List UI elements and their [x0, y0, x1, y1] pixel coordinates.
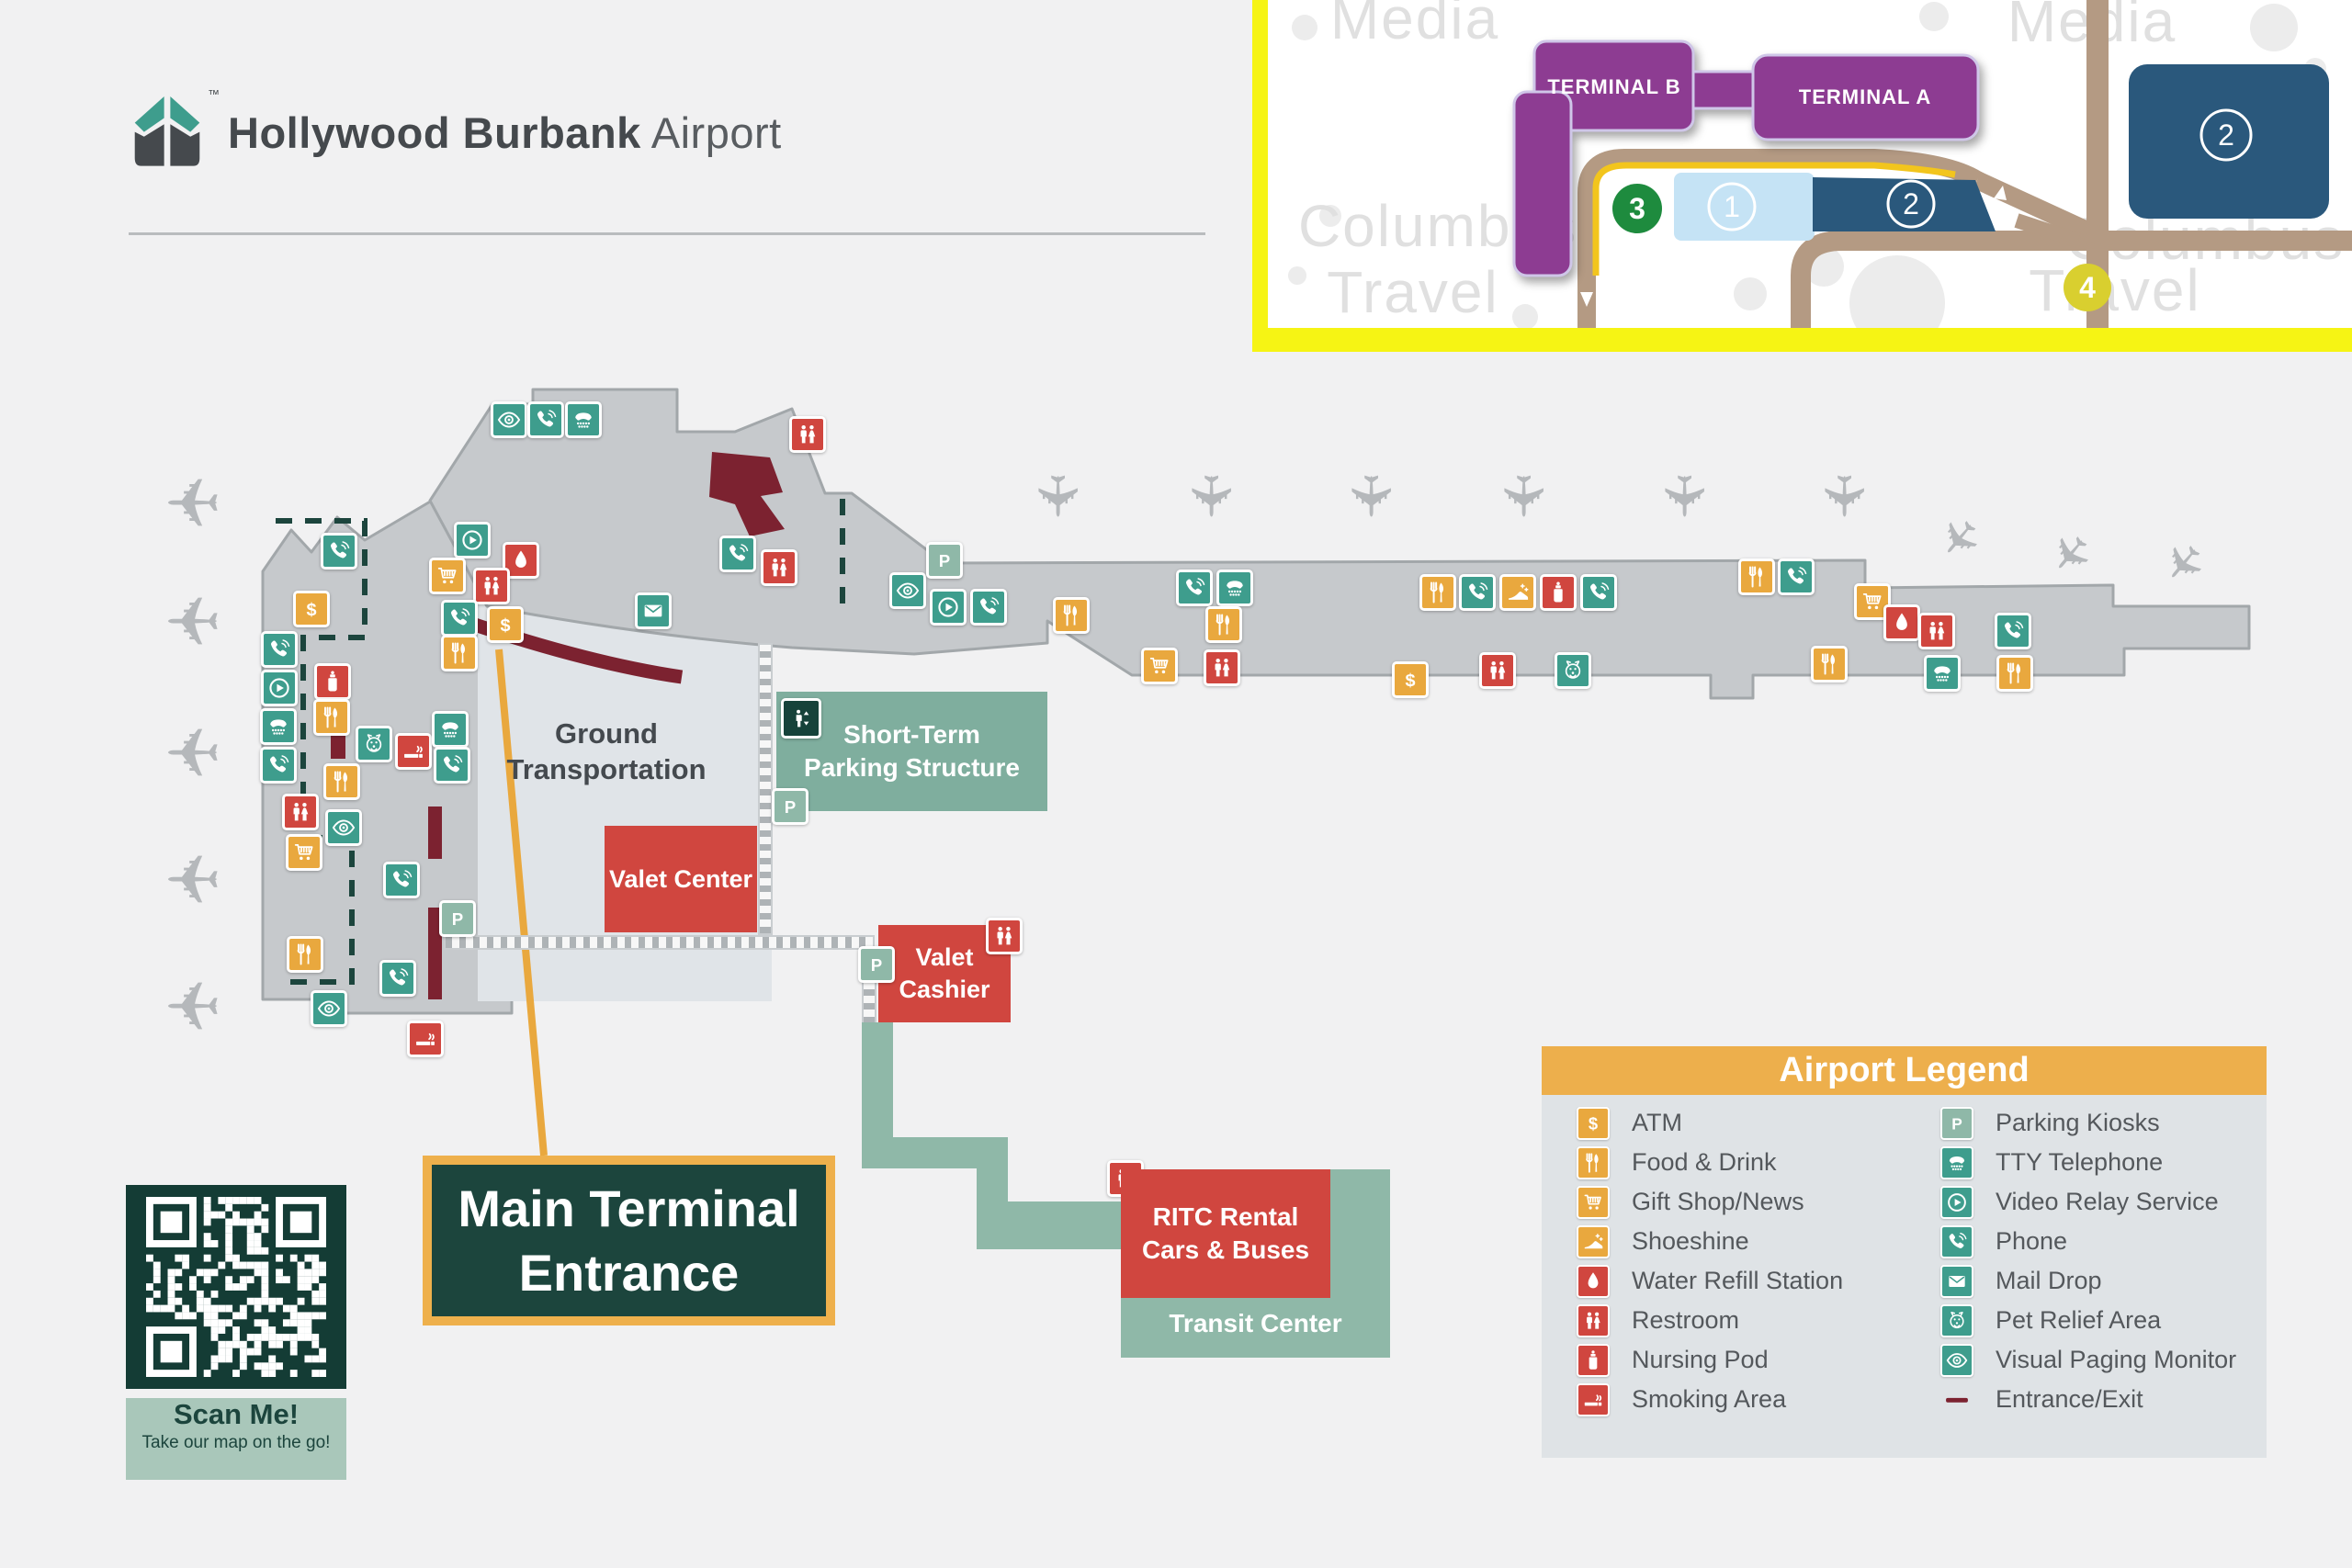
airplane-icon: ✈: [1341, 472, 1398, 520]
svg-text:P: P: [785, 797, 796, 817]
cart-icon: [286, 834, 322, 871]
entrance-exit-mark: [428, 807, 442, 859]
mail-icon: [1940, 1265, 1973, 1298]
legend-label: Shoeshine: [1632, 1227, 1749, 1256]
airplane-icon: ✈: [1494, 472, 1551, 520]
svg-text:P: P: [871, 955, 882, 975]
legend-row: TTY Telephone: [1940, 1143, 2236, 1182]
food-icon: [1419, 574, 1456, 611]
phone-icon: [1778, 558, 1815, 595]
legend-label: Nursing Pod: [1632, 1346, 1769, 1374]
legend-label: Phone: [1996, 1227, 2067, 1256]
video-icon: [1940, 1186, 1973, 1219]
watermark-text: Travel: [1327, 259, 1498, 325]
terminal-b-label: TERMINAL B: [1547, 75, 1680, 98]
legend-row: Mail Drop: [1940, 1261, 2236, 1301]
svg-text:P: P: [452, 909, 463, 929]
restroom-icon: [1918, 613, 1955, 649]
legend-label: Restroom: [1632, 1306, 1739, 1335]
food-icon: [1205, 606, 1242, 643]
legend-row: Phone: [1940, 1222, 2236, 1261]
valet-center-block: Valet Center: [605, 826, 757, 932]
phone-icon: [1940, 1225, 1973, 1258]
shoe-icon: [1499, 574, 1536, 611]
restroom-icon: [789, 416, 826, 453]
restroom-icon: [1577, 1304, 1610, 1337]
legend-left-column: $ATMFood & DrinkGift Shop/NewsShoeshineW…: [1577, 1103, 1843, 1419]
main-terminal-entrance-sign: Main Terminal Entrance: [423, 1156, 835, 1325]
watermark-text: Travel: [2029, 257, 2200, 323]
atm-icon: $: [1577, 1107, 1610, 1140]
smoking-icon: [1577, 1383, 1610, 1416]
food-icon: [1811, 646, 1848, 682]
restroom-icon: [1204, 649, 1240, 686]
stop-4-marker: 4: [2079, 271, 2096, 304]
pet-icon: [356, 726, 392, 762]
tty-icon: [565, 401, 602, 438]
legend-label: Visual Paging Monitor: [1996, 1346, 2236, 1374]
airplane-icon: ✈: [164, 470, 221, 538]
watermark-text: Media: [1330, 0, 1499, 51]
trademark: ™: [208, 87, 220, 101]
video-icon: [454, 522, 491, 558]
parking-icon: P: [1940, 1107, 1973, 1140]
tty-icon: [1940, 1146, 1973, 1179]
atm-icon: $: [487, 606, 524, 643]
legend-label: Smoking Area: [1632, 1385, 1786, 1414]
elevator-icon: [781, 698, 821, 739]
eye-icon: [311, 990, 347, 1027]
svg-text:$: $: [1589, 1113, 1598, 1133]
cart-icon: [429, 558, 466, 594]
phone-icon: [1995, 613, 2031, 649]
phone-icon: [383, 862, 420, 898]
legend-row: $ATM: [1577, 1103, 1843, 1143]
inset-overview-map: " MediaMediaColumbusColumbusTravelTravel: [1252, 0, 2352, 352]
smoking-icon: [407, 1021, 444, 1057]
legend-row: Smoking Area: [1577, 1380, 1843, 1419]
phone-icon: [321, 533, 357, 570]
airplane-icon: ✈: [1028, 472, 1085, 520]
qr-title: Scan Me!: [126, 1398, 346, 1431]
legend-label: ATM: [1632, 1109, 1682, 1137]
legend-label: Parking Kiosks: [1996, 1109, 2160, 1137]
airplane-icon: ✈: [164, 589, 221, 657]
video-icon: [930, 589, 967, 626]
mail-icon: [635, 592, 672, 629]
ground-transportation-label: Ground Transportation: [469, 716, 744, 788]
qr-caption: Scan Me! Take our map on the go!: [126, 1398, 346, 1480]
qr-subtitle: Take our map on the go!: [126, 1433, 346, 1453]
airplane-icon: ✈: [164, 720, 221, 788]
legend-row: Water Refill Station: [1577, 1261, 1843, 1301]
water-icon: [1883, 604, 1920, 641]
airport-legend: Airport Legend $ATMFood & DrinkGift Shop…: [1542, 1046, 2267, 1458]
phone-icon: [441, 600, 478, 637]
stop-3-marker: 3: [1629, 192, 1645, 225]
legend-header: Airport Legend: [1542, 1046, 2267, 1095]
atm-icon: $: [293, 591, 330, 627]
airport-map-page: ™ Hollywood Burbank Airport Ground Trans…: [0, 0, 2352, 1568]
entrance-icon: [1940, 1383, 1973, 1416]
svg-text:$: $: [500, 615, 510, 636]
eye-icon: [325, 809, 362, 846]
qr-code: [126, 1185, 346, 1389]
video-icon: [261, 670, 298, 706]
legend-row: Pet Relief Area: [1940, 1301, 2236, 1340]
food-icon: [287, 936, 323, 973]
legend-row: Food & Drink: [1577, 1143, 1843, 1182]
legend-row: Gift Shop/News: [1577, 1182, 1843, 1222]
restroom-icon: [761, 549, 797, 586]
food-icon: [313, 699, 350, 736]
parking-icon: P: [858, 946, 895, 983]
phone-icon: [261, 631, 298, 668]
phone-icon: [719, 536, 756, 572]
legend-row: Nursing Pod: [1577, 1340, 1843, 1380]
airplane-icon: ✈: [164, 847, 221, 915]
terminal-a-label: TERMINAL A: [1799, 85, 1931, 108]
food-icon: [1577, 1146, 1610, 1179]
nursing-icon: [1540, 574, 1577, 611]
tty-icon: [1216, 570, 1253, 606]
legend-label: Entrance/Exit: [1996, 1385, 2143, 1414]
restroom-icon: [1479, 652, 1516, 689]
airplane-icon: ✈: [1815, 472, 1871, 520]
lot-2-marker: 2: [1903, 187, 1919, 220]
svg-text:$: $: [306, 600, 316, 620]
brand-name: Hollywood Burbank Airport: [228, 107, 782, 158]
legend-row: Restroom: [1577, 1301, 1843, 1340]
shoe-icon: [1577, 1225, 1610, 1258]
restroom-icon: [473, 568, 510, 604]
phone-icon: [1176, 570, 1213, 606]
restroom-icon: [986, 918, 1023, 954]
tty-icon: [260, 708, 297, 745]
phone-icon: [260, 747, 297, 784]
legend-right-column: PParking KiosksTTY TelephoneVideo Relay …: [1940, 1103, 2236, 1419]
qr-panel: Scan Me! Take our map on the go!: [126, 1185, 346, 1480]
transit-center-label: Transit Center: [1139, 1309, 1372, 1338]
svg-text:P: P: [1951, 1114, 1962, 1133]
phone-icon: [379, 960, 416, 997]
walkway-cashier: [862, 981, 876, 1025]
nursing-icon: [314, 663, 351, 700]
cart-icon: [1141, 648, 1178, 684]
restroom-icon: [282, 794, 319, 830]
ritc-rental-block: RITC Rental Cars & Buses: [1121, 1169, 1330, 1298]
walkway-horizontal: [444, 935, 875, 950]
food-icon: [323, 763, 360, 800]
legend-title: Airport Legend: [1779, 1051, 2029, 1090]
walkway-vertical: [758, 643, 773, 935]
legend-label: Water Refill Station: [1632, 1267, 1843, 1295]
eye-icon: [889, 572, 926, 609]
legend-row: Shoeshine: [1577, 1222, 1843, 1261]
transit-path: [977, 1201, 1141, 1249]
pet-icon: [1940, 1304, 1973, 1337]
legend-label: Mail Drop: [1996, 1267, 2102, 1295]
airplane-icon: ✈: [1182, 472, 1238, 520]
eye-icon: [1940, 1344, 1973, 1377]
cart-icon: [1577, 1186, 1610, 1219]
phone-icon: [434, 747, 470, 784]
legend-row: Video Relay Service: [1940, 1182, 2236, 1222]
phone-icon: [1459, 574, 1496, 611]
legend-label: Gift Shop/News: [1632, 1188, 1804, 1216]
legend-label: TTY Telephone: [1996, 1148, 2163, 1177]
parking-icon: P: [772, 788, 808, 825]
food-icon: [1053, 597, 1090, 634]
legend-label: Video Relay Service: [1996, 1188, 2219, 1216]
phone-icon: [1580, 574, 1617, 611]
nursing-icon: [1577, 1344, 1610, 1377]
lot-2b-marker: 2: [2218, 118, 2234, 152]
phone-icon: [527, 401, 564, 438]
phone-icon: [970, 589, 1007, 626]
legend-label: Food & Drink: [1632, 1148, 1777, 1177]
legend-row: PParking Kiosks: [1940, 1103, 2236, 1143]
food-icon: [1996, 655, 2033, 692]
airplane-icon: ✈: [1655, 472, 1712, 520]
tty-icon: [432, 711, 469, 748]
legend-row: Visual Paging Monitor: [1940, 1340, 2236, 1380]
eye-icon: [491, 401, 527, 438]
atm-icon: $: [1392, 661, 1429, 698]
parking-icon: P: [439, 900, 476, 937]
inset-graphic: " MediaMediaColumbusColumbusTravelTravel: [1268, 0, 2352, 328]
svg-text:P: P: [939, 551, 950, 570]
airplane-icon: ✈: [164, 974, 221, 1042]
water-icon: [1577, 1265, 1610, 1298]
pet-icon: [1555, 652, 1591, 689]
smoking-icon: [395, 733, 432, 770]
header-divider: [129, 232, 1205, 235]
tty-icon: [1924, 655, 1961, 692]
food-icon: [1738, 558, 1775, 595]
lot-1-marker: 1: [1724, 190, 1740, 223]
parking-icon: P: [926, 542, 963, 579]
legend-row: Entrance/Exit: [1940, 1380, 2236, 1419]
svg-text:$: $: [1405, 671, 1415, 691]
food-icon: [441, 635, 478, 671]
legend-label: Pet Relief Area: [1996, 1306, 2161, 1335]
airport-logo-icon: [129, 92, 206, 169]
